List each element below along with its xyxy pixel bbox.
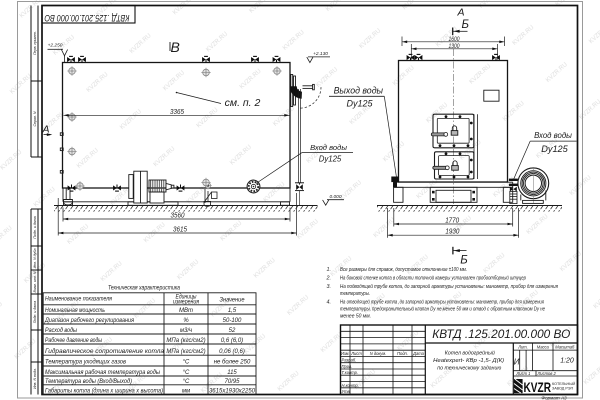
svg-text:менее 50 мм.: менее 50 мм. xyxy=(340,314,371,320)
svg-text:Все размеры для справок, допус: Все размеры для справок, допустимое откл… xyxy=(340,267,467,273)
svg-text:Dy125: Dy125 xyxy=(319,154,342,163)
svg-text:КВТД .125.201.00.000 ВО: КВТД .125.201.00.000 ВО xyxy=(45,13,130,23)
svg-text:Подп. и дата: Подп. и дата xyxy=(33,216,37,239)
svg-text:+2.130: +2.130 xyxy=(313,51,328,57)
svg-text:70/95: 70/95 xyxy=(224,379,240,385)
svg-text:по техническому заданию: по техническому заданию xyxy=(437,366,502,372)
svg-text:ЗАВОД РЭП: ЗАВОД РЭП xyxy=(552,387,573,391)
svg-text:Расход воды: Расход воды xyxy=(45,328,78,334)
svg-text:Изм.: Изм. xyxy=(341,351,350,356)
svg-text:Рабочее давление воды: Рабочее давление воды xyxy=(45,338,102,344)
svg-text:Листов 2: Листов 2 xyxy=(537,371,557,376)
svg-text:КВТД .125.201.00.000 ВО: КВТД .125.201.00.000 ВО xyxy=(432,327,570,341)
svg-text:Н.контр.: Н.контр. xyxy=(342,383,359,388)
svg-text:3560: 3560 xyxy=(171,210,185,219)
svg-text:см. п. 2: см. п. 2 xyxy=(225,97,261,109)
svg-text:На подводящей трубе котла, д: На подводящей трубе котла, до запорной а… xyxy=(340,283,558,290)
svg-text:0,6 (6,0): 0,6 (6,0) xyxy=(221,338,243,344)
svg-text:Перв. примен.: Перв. примен. xyxy=(33,31,37,55)
svg-text:На боковой стенке котла в обла: На боковой стенке котла в области топочн… xyxy=(340,275,526,282)
svg-text:мм: мм xyxy=(182,388,190,394)
svg-text:3.: 3. xyxy=(327,284,332,290)
svg-text:1930: 1930 xyxy=(445,226,459,235)
svg-text:Разраб.: Разраб. xyxy=(342,358,357,363)
svg-text:Котел водогрейный: Котел водогрейный xyxy=(445,349,495,356)
svg-text:Утв.: Утв. xyxy=(342,389,351,394)
svg-text:KVZR: KVZR xyxy=(524,380,552,395)
svg-text:%: % xyxy=(183,318,189,324)
svg-text:Dy125: Dy125 xyxy=(346,98,373,108)
svg-text:Вход воды: Вход воды xyxy=(534,131,572,140)
svg-text:1:20: 1:20 xyxy=(560,358,574,365)
svg-text:Взам. инв. N: Взам. инв. N xyxy=(33,271,37,292)
svg-text:Дата: Дата xyxy=(412,351,425,356)
svg-text:+2.250: +2.250 xyxy=(48,43,63,49)
svg-text:м3/ч: м3/ч xyxy=(180,328,192,334)
svg-text:Гидравлическое сопротивление к: Гидравлическое сопротивление котла xyxy=(45,349,165,355)
svg-text:2.: 2. xyxy=(326,276,332,282)
svg-text:Значение: Значение xyxy=(220,297,246,303)
svg-text:Масса: Масса xyxy=(537,344,550,349)
svg-text:°С: °С xyxy=(183,370,190,376)
svg-text:Т.контр.: Т.контр. xyxy=(342,370,359,375)
svg-text:52: 52 xyxy=(229,328,236,334)
svg-text:измерения: измерения xyxy=(173,300,200,306)
svg-text:50-100: 50-100 xyxy=(223,318,242,324)
svg-text:Подп.: Подп. xyxy=(397,351,408,356)
svg-text:И: И xyxy=(514,358,520,367)
svg-text:3615х1930х2250: 3615х1930х2250 xyxy=(209,388,256,394)
svg-text:А: А xyxy=(41,123,49,135)
svg-text:Габариты котла (длина х ширина: Габариты котла (длина х ширина х высота) xyxy=(45,388,163,394)
svg-text:Максимальная рабочая температу: Максимальная рабочая температура воды xyxy=(45,370,161,376)
svg-text:МПа (кгс/см2): МПа (кгс/см2) xyxy=(166,338,205,344)
svg-text:А: А xyxy=(456,6,464,18)
svg-text:1.: 1. xyxy=(327,267,332,273)
svg-text:3365: 3365 xyxy=(170,107,185,116)
svg-text:не более 250: не более 250 xyxy=(214,360,251,366)
svg-text:1600: 1600 xyxy=(449,36,460,43)
svg-text:Техническая характеристика: Техническая характеристика xyxy=(108,284,180,291)
svg-text:Формат А3: Формат А3 xyxy=(541,395,567,400)
svg-text:Б: Б xyxy=(462,19,470,31)
svg-text:температуры, предохранительный: температуры, предохранительный клапан Dy… xyxy=(340,306,545,313)
svg-text:°С: °С xyxy=(183,379,190,385)
svg-text:КОТЕЛЬНЫЙ: КОТЕЛЬНЫЙ xyxy=(552,382,575,386)
svg-text:Инв. N подл.: Инв. N подл. xyxy=(33,368,37,389)
svg-text:0.000: 0.000 xyxy=(329,194,341,200)
svg-text:Температура воды (Вход/Выход): Температура воды (Вход/Выход) xyxy=(45,379,132,385)
svg-text:4.: 4. xyxy=(327,300,332,306)
svg-text:Heatexpert- КВр -1,5- Д(К): Heatexpert- КВр -1,5- Д(К) xyxy=(433,358,504,364)
svg-text:Наименование показателя: Наименование показателя xyxy=(45,296,113,302)
svg-text:Dy125: Dy125 xyxy=(541,144,568,154)
svg-text:Б: Б xyxy=(460,254,468,266)
svg-text:Лист 1: Лист 1 xyxy=(516,371,531,376)
svg-text:Инв. N дубл.: Инв. N дубл. xyxy=(33,248,37,269)
svg-text:Справ. N: Справ. N xyxy=(33,111,37,126)
svg-text:115: 115 xyxy=(227,370,237,376)
svg-text:Пров.: Пров. xyxy=(342,364,353,369)
svg-text:Выход воды: Выход воды xyxy=(334,85,384,95)
svg-text:Масштаб: Масштаб xyxy=(555,344,575,349)
svg-text:МПа (кгс/см2): МПа (кгс/см2) xyxy=(166,349,205,355)
svg-text:МВт: МВт xyxy=(179,308,193,314)
svg-text:Подп. и дата: Подп. и дата xyxy=(33,301,37,324)
svg-text:0,06 (0,6): 0,06 (0,6) xyxy=(219,349,245,355)
svg-text:N докум.: N докум. xyxy=(370,351,387,356)
svg-text:Температура уходящих газов: Температура уходящих газов xyxy=(45,360,126,366)
svg-text:1,5: 1,5 xyxy=(228,308,237,314)
svg-text:В: В xyxy=(171,39,180,55)
svg-text:температуры.: температуры. xyxy=(340,291,370,297)
svg-text:На отводящей трубе котла ,до з: На отводящей трубе котла ,до запорной ар… xyxy=(340,299,544,306)
svg-text:Лит.: Лит. xyxy=(517,344,528,349)
svg-text:°С: °С xyxy=(183,360,190,366)
svg-text:1300: 1300 xyxy=(449,43,460,50)
svg-text:Номинальная мощность: Номинальная мощность xyxy=(45,308,105,314)
svg-text:Вход воды: Вход воды xyxy=(310,143,347,152)
svg-text:Диапазон рабочего регулировани: Диапазон рабочего регулирования xyxy=(44,318,135,324)
svg-text:1770: 1770 xyxy=(445,216,459,225)
svg-text:Лист: Лист xyxy=(350,351,362,356)
svg-text:3615: 3615 xyxy=(173,224,188,233)
